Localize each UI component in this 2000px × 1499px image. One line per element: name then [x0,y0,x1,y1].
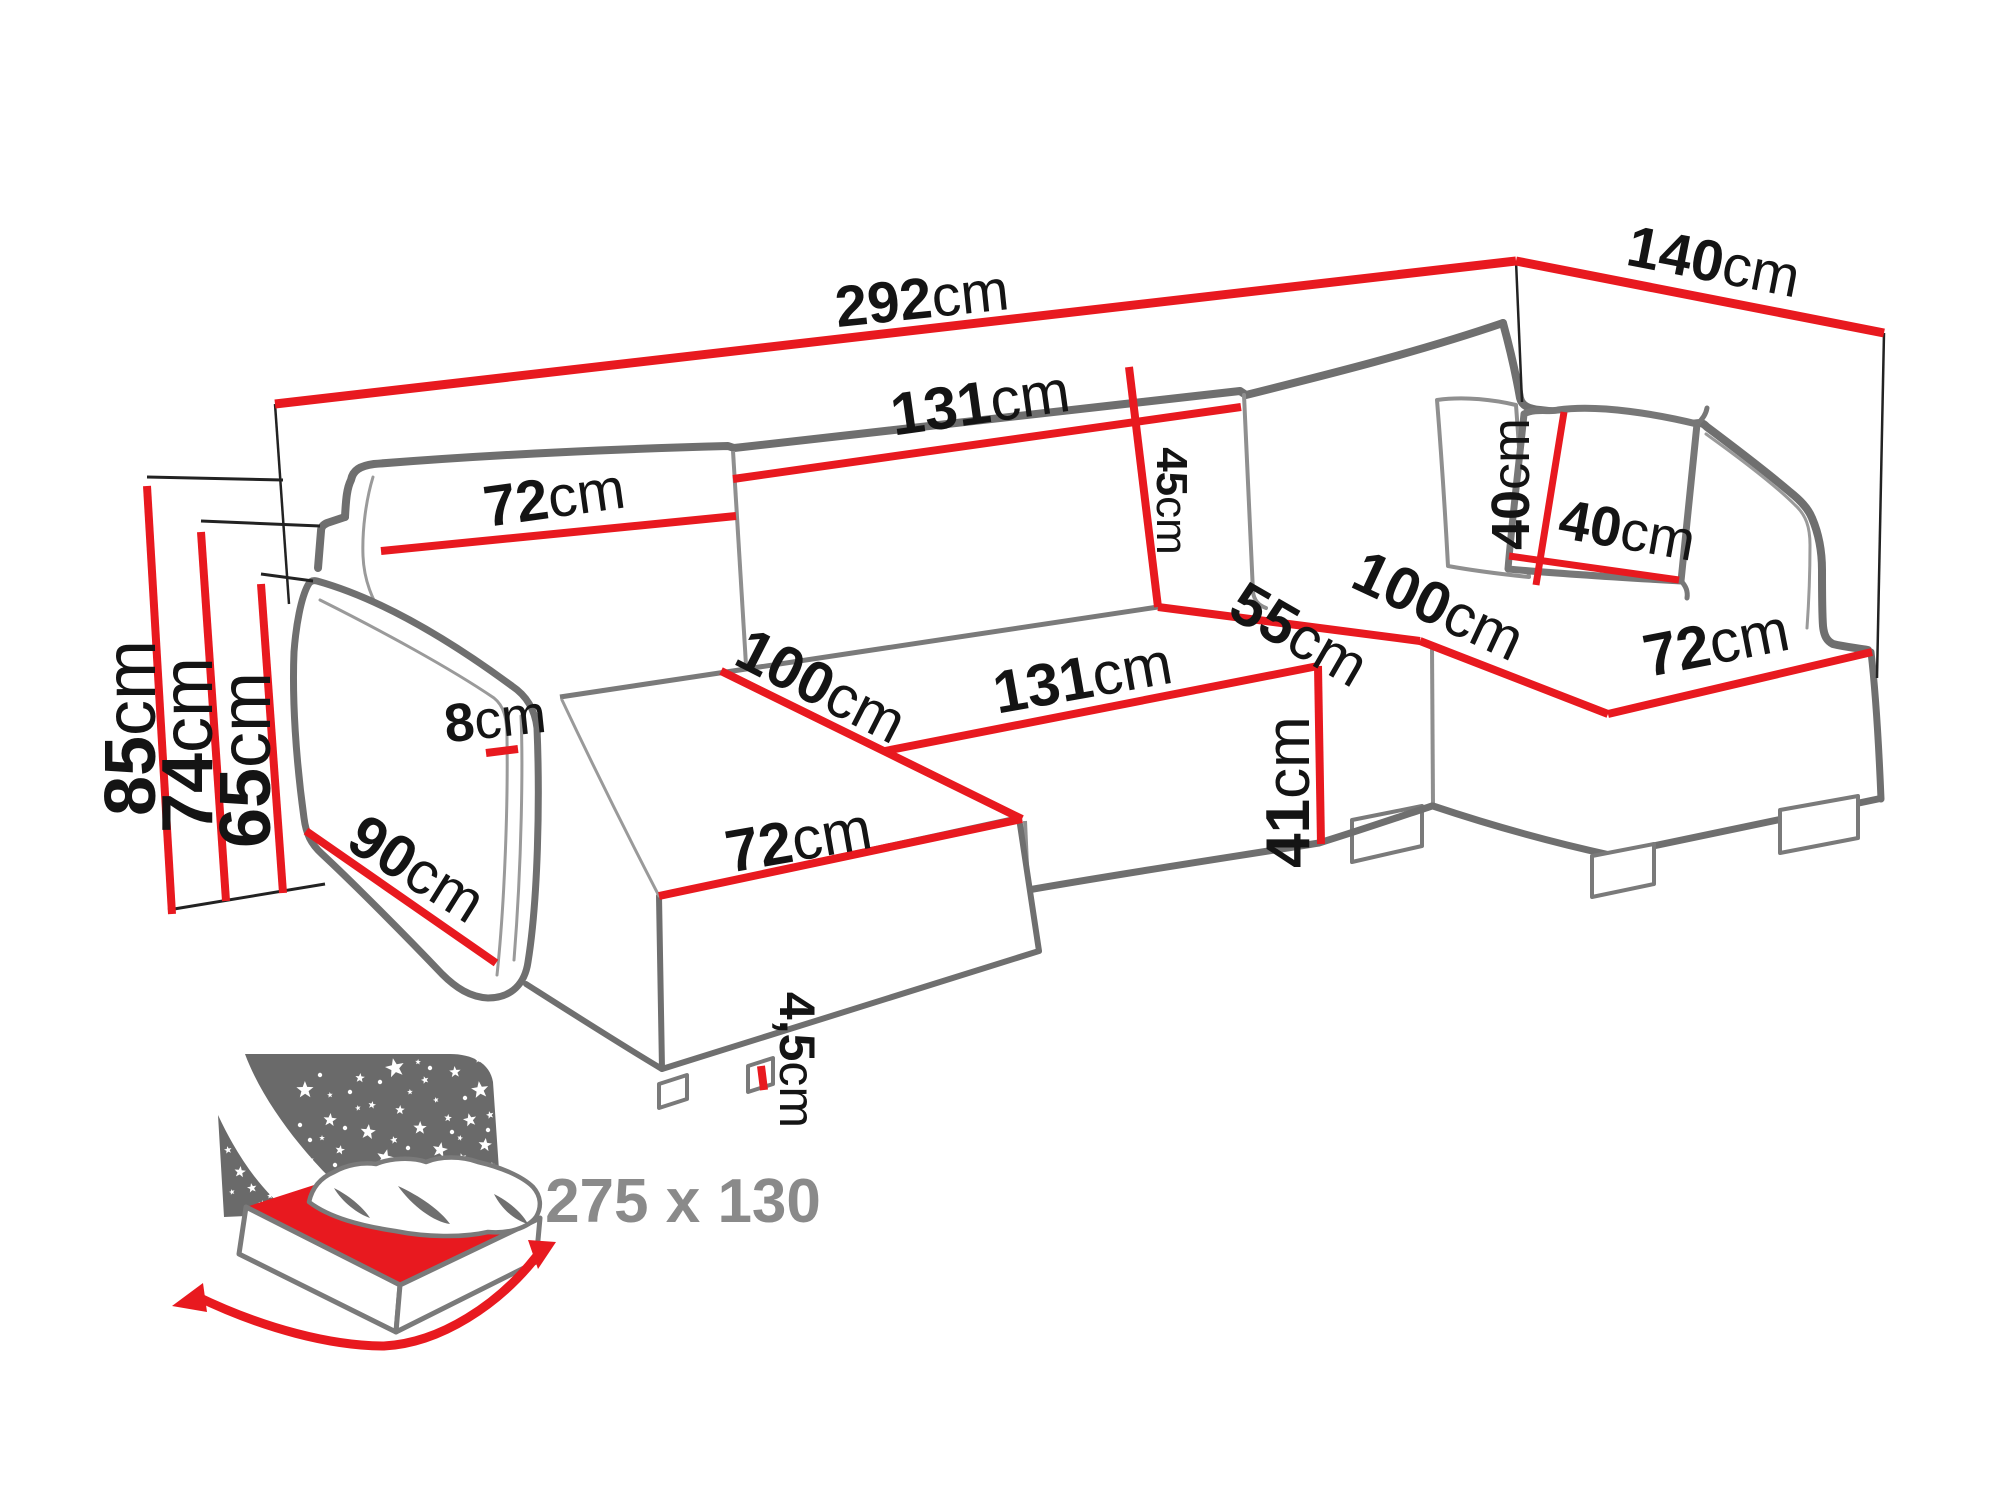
svg-text:65cm: 65cm [206,672,286,848]
svg-text:275 x 130: 275 x 130 [545,1167,821,1236]
svg-text:45cm: 45cm [1147,447,1196,555]
svg-text:41cm: 41cm [1254,716,1323,868]
svg-text:40cm: 40cm [1481,418,1541,550]
svg-text:8cm: 8cm [441,684,549,754]
svg-text:4,5cm: 4,5cm [769,992,825,1128]
